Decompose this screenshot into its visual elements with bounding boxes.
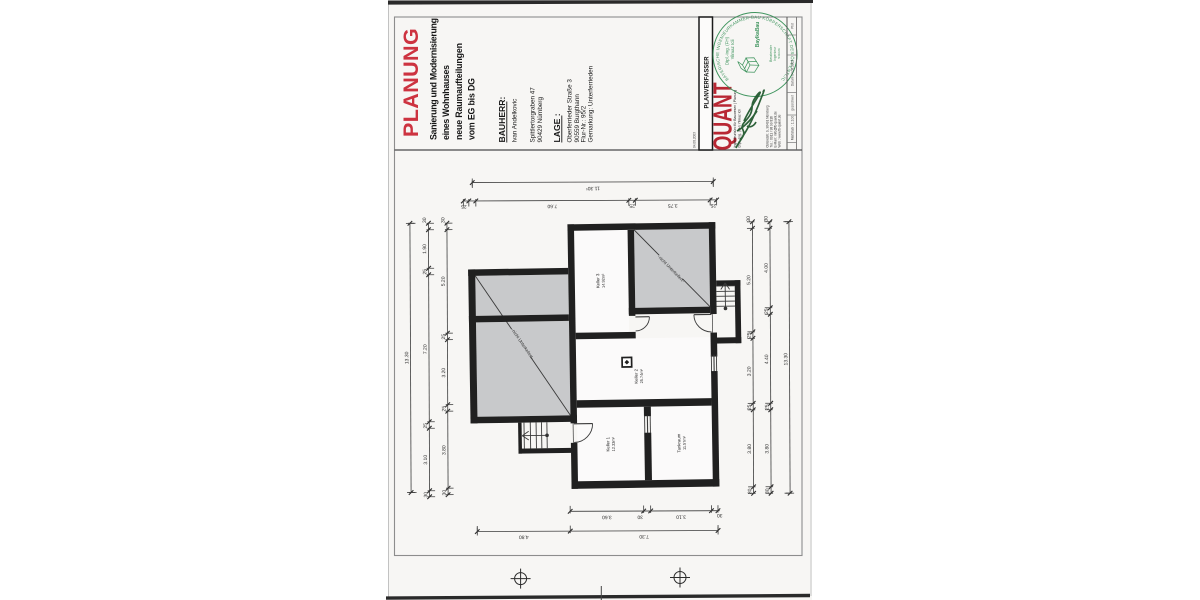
svg-text:BayIkaBau: BayIkaBau <box>755 22 761 48</box>
svg-text:25: 25 <box>747 332 753 338</box>
svg-text:12.33m²: 12.33m² <box>611 436 616 451</box>
svg-text:541026: 541026 <box>777 48 781 59</box>
svg-text:11.57m²: 11.57m² <box>682 435 687 450</box>
svg-text:30: 30 <box>747 488 753 494</box>
svg-text:30: 30 <box>763 216 769 222</box>
svg-text:30: 30 <box>440 217 446 223</box>
svg-text:25: 25 <box>764 308 770 314</box>
svg-text:vom EG bis DG: vom EG bis DG <box>466 78 476 140</box>
svg-text:25: 25 <box>441 334 447 340</box>
svg-text:11.30⁵: 11.30⁵ <box>586 185 600 191</box>
svg-text:Spittlertorgraben 47: Spittlertorgraben 47 <box>530 87 537 143</box>
svg-text:3.75: 3.75 <box>668 202 678 208</box>
svg-text:Datum 04.08.2003: Datum 04.08.2003 <box>791 60 795 86</box>
svg-text:LAGE :: LAGE : <box>552 113 562 142</box>
svg-text:3.10: 3.10 <box>676 513 686 519</box>
svg-text:13.30: 13.30 <box>783 353 789 366</box>
svg-text:7.20: 7.20 <box>423 344 429 354</box>
svg-text:25: 25 <box>764 404 770 410</box>
svg-text:25: 25 <box>422 269 428 275</box>
svg-text:14.92m²: 14.92m² <box>601 273 606 288</box>
svg-text:25: 25 <box>747 404 753 410</box>
svg-text:Yilmaz Icli: Yilmaz Icli <box>730 39 735 59</box>
svg-text:3.60: 3.60 <box>602 514 612 520</box>
svg-text:7.60: 7.60 <box>547 203 557 209</box>
svg-text:30: 30 <box>423 492 429 498</box>
svg-text:30: 30 <box>442 490 448 496</box>
svg-text:25: 25 <box>461 203 467 209</box>
svg-text:3.80: 3.80 <box>441 445 447 455</box>
svg-text:5.20: 5.20 <box>746 275 752 285</box>
svg-text:30: 30 <box>637 514 643 520</box>
svg-text:eines Wohnhauses: eines Wohnhauses <box>441 65 451 140</box>
svg-text:3.10: 3.10 <box>423 455 429 465</box>
svg-text:25: 25 <box>710 202 716 208</box>
svg-text:13.30: 13.30 <box>404 351 410 364</box>
svg-text:25.74m²: 25.74m² <box>639 368 644 383</box>
svg-text:Oberferrieder Straße 3: Oberferrieder Straße 3 <box>567 79 574 143</box>
svg-text:Maßstab : 1:100: Maßstab : 1:100 <box>791 116 795 141</box>
svg-text:BAUHERR:: BAUHERR: <box>497 97 507 143</box>
svg-text:25: 25 <box>441 406 447 412</box>
svg-text:Sanierung und Modernisierung: Sanierung und Modernisierung <box>429 18 439 140</box>
svg-text:Gemarkung: Unterferrieden: Gemarkung: Unterferrieden <box>588 65 595 142</box>
svg-text:30: 30 <box>422 217 428 223</box>
svg-text:4.80: 4.80 <box>519 534 529 540</box>
svg-text:5.20: 5.20 <box>441 276 447 286</box>
svg-text:gezeichnet: gezeichnet <box>791 95 795 111</box>
svg-text:3.80: 3.80 <box>764 444 770 454</box>
svg-text:1.90: 1.90 <box>422 244 428 254</box>
svg-text:PLANUNG: PLANUNG <box>399 28 423 137</box>
svg-text:neue Raumaufteilungen: neue Raumaufteilungen <box>454 43 464 140</box>
svg-text:3.20: 3.20 <box>441 368 447 378</box>
svg-text:25: 25 <box>629 202 635 208</box>
svg-text:30: 30 <box>765 488 771 494</box>
svg-text:Ingenieurbüro für Bauwesen | P: Ingenieurbüro für Bauwesen | Planung <box>733 90 737 148</box>
svg-text:30: 30 <box>746 216 752 222</box>
svg-text:25: 25 <box>423 423 429 429</box>
svg-text:4.00: 4.00 <box>764 263 770 273</box>
svg-text:Web : www.fb-quant.de: Web : www.fb-quant.de <box>778 114 782 147</box>
svg-text:3.20: 3.20 <box>747 366 753 376</box>
svg-text:Dipl.-Ing. (FH): Dipl.-Ing. (FH) <box>725 36 730 65</box>
svg-text:3.80: 3.80 <box>747 444 753 454</box>
svg-text:Plot: Plot <box>791 23 795 29</box>
svg-text:04.08.2003: 04.08.2003 <box>693 132 697 148</box>
svg-text:Ivan Andelkovic: Ivan Andelkovic <box>512 99 519 143</box>
svg-text:30: 30 <box>717 512 723 518</box>
svg-text:Flur-Nr.: 95/2: Flur-Nr.: 95/2 <box>581 105 588 142</box>
svg-text:7.30: 7.30 <box>639 533 649 539</box>
svg-text:4.40: 4.40 <box>764 354 770 364</box>
svg-text:90429 Nürnberg: 90429 Nürnberg <box>537 96 544 142</box>
